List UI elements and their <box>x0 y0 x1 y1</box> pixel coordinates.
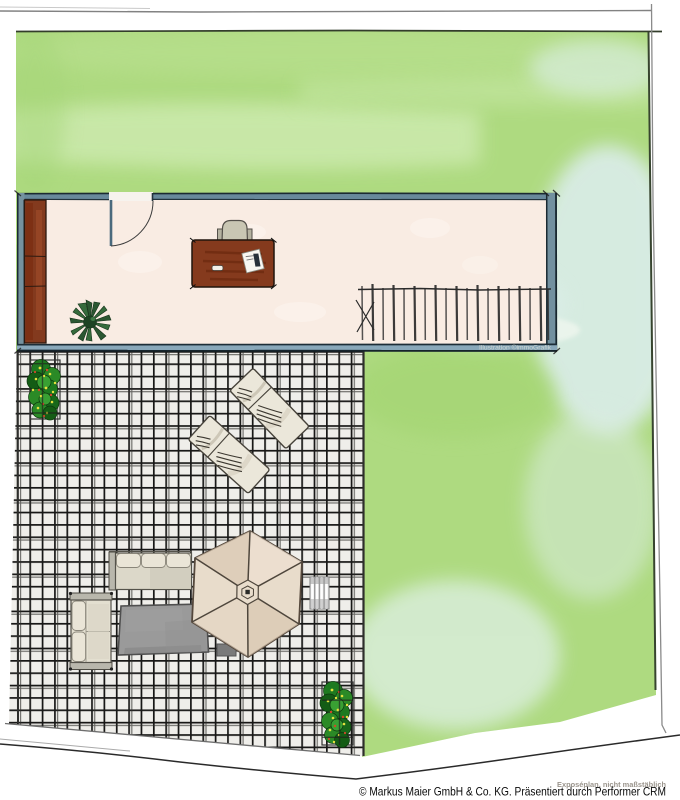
svg-text:Illustration ©immoGrafik: Illustration ©immoGrafik <box>479 345 552 352</box>
svg-text:© Markus Maier GmbH & Co. KG.: © Markus Maier GmbH & Co. KG. Präsentier… <box>359 785 666 799</box>
